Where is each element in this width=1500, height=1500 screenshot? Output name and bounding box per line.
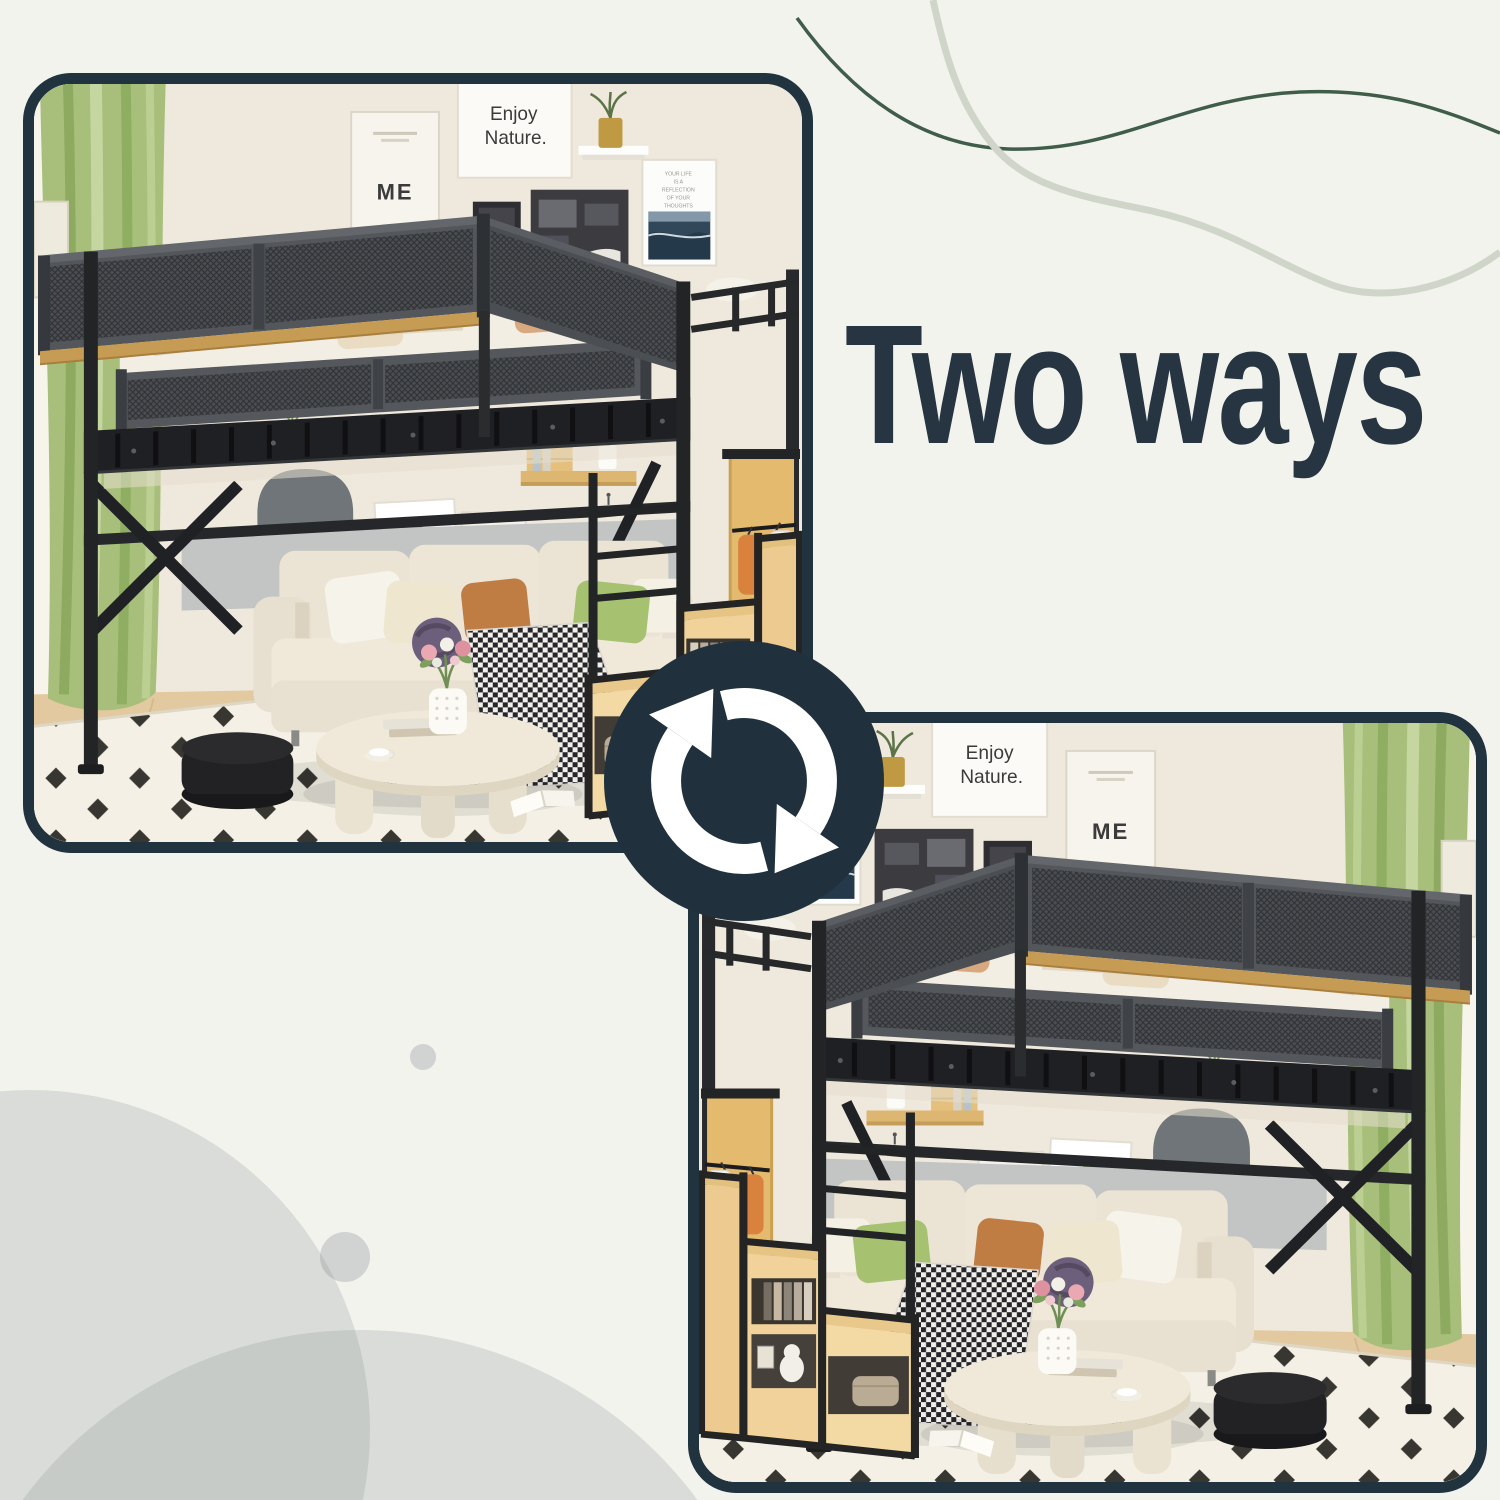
poster-quote-line: YOUR LIFE [665,172,693,178]
decor-curve-light [933,0,1500,293]
poster-text-me: ME [377,180,414,205]
promo-image: Enjoy Nature. ME YOUR LIFE IS A REFLECTI… [0,0,1500,1500]
poster-quote-line: REFLECTION [662,188,695,194]
poster-quote-line: OF YOUR [667,196,691,202]
poster-text-enjoy-1: Enjoy [966,743,1014,764]
decor-curve-dark [797,18,1500,149]
poster-text-enjoy-2: Nature. [960,767,1023,788]
poster-text-me: ME [1092,819,1129,844]
poster-quote-line: IS A [674,180,684,186]
swap-arrows-badge [603,640,885,922]
swap-badge-circle [604,641,884,921]
poster-quote-line: THOUGHTS [664,204,694,210]
decor-circles [0,1044,780,1500]
poster-text-enjoy-2: Nature. [485,128,547,149]
poster-text-enjoy-1: Enjoy [490,104,538,125]
headline: Two ways [845,300,1426,470]
